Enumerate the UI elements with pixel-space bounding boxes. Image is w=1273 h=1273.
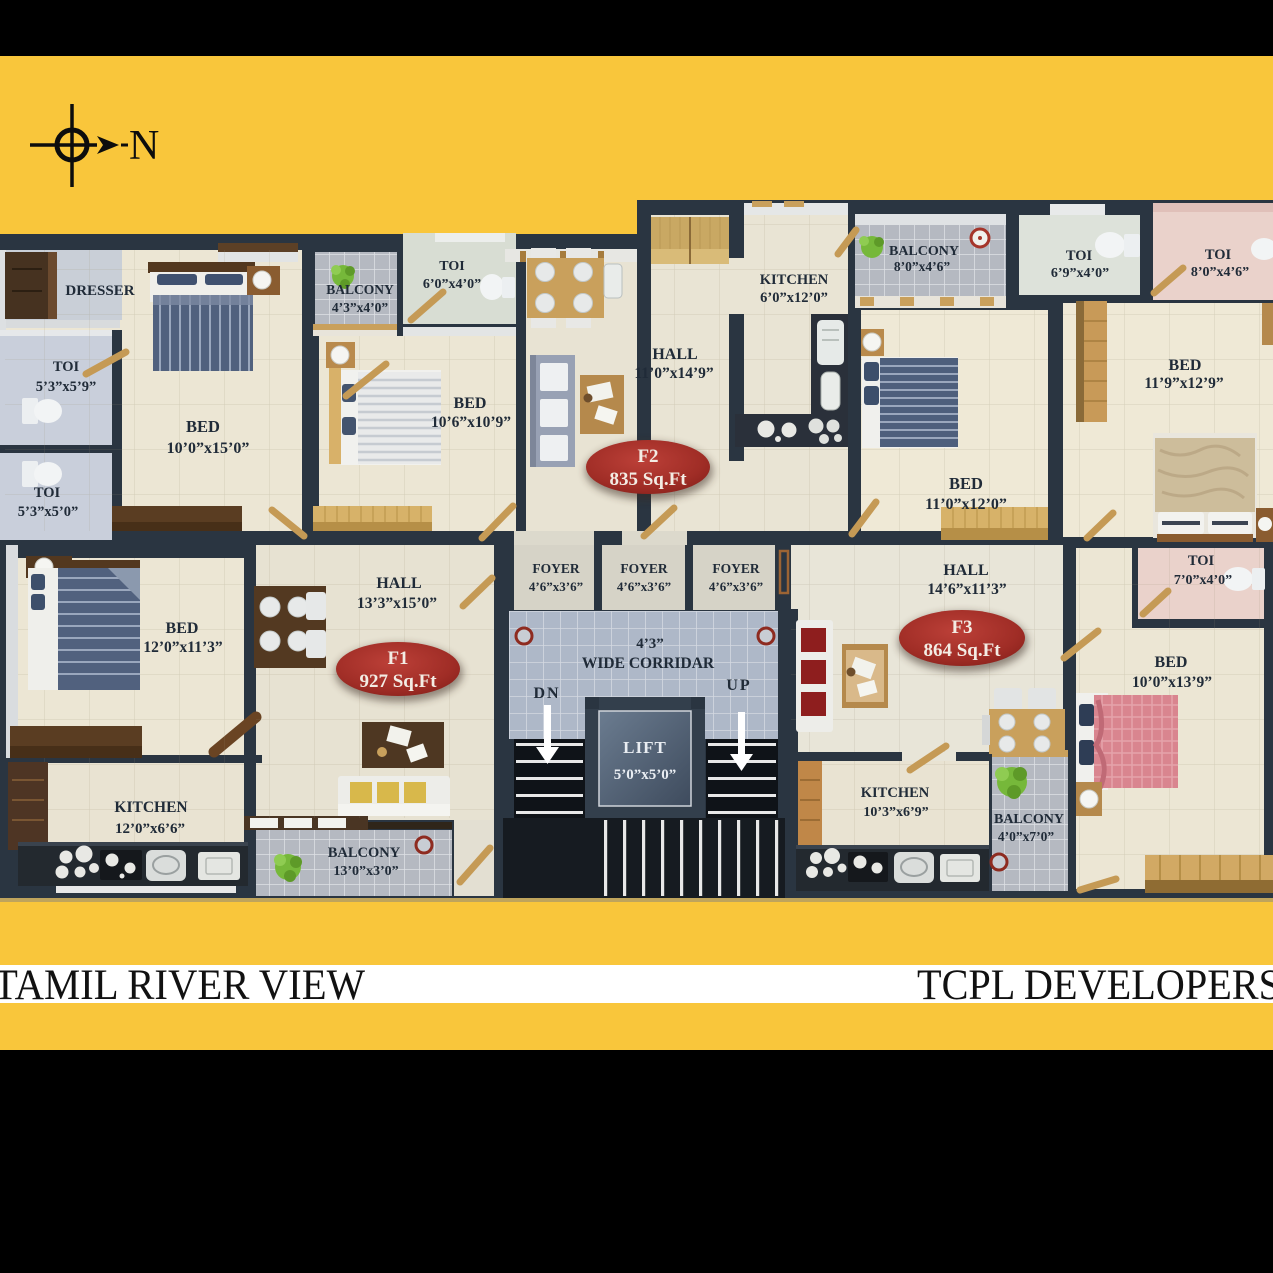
svg-text:12’0”x11’3”: 12’0”x11’3” [143,639,222,656]
svg-text:TOI: TOI [1188,553,1215,569]
svg-text:KITCHEN: KITCHEN [760,272,829,288]
svg-text:4’3”x4’0”: 4’3”x4’0” [332,300,388,315]
svg-text:7’0”x4’0”: 7’0”x4’0” [1174,573,1232,588]
svg-text:4’6”x3’6”: 4’6”x3’6” [529,579,583,594]
svg-text:5’3”x5’0”: 5’3”x5’0” [18,504,78,520]
svg-text:DN: DN [533,685,560,702]
svg-text:TCPL DEVELOPERS: TCPL DEVELOPERS [917,962,1273,1009]
svg-text:KITCHEN: KITCHEN [861,785,930,801]
svg-text:BED: BED [1169,357,1202,374]
svg-text:DRESSER: DRESSER [65,283,134,299]
svg-text:LIFT: LIFT [623,738,667,757]
svg-text:TOI: TOI [439,259,464,274]
svg-text:TOI: TOI [53,359,80,375]
svg-text:F2: F2 [637,446,658,467]
svg-text:5’3”x5’9”: 5’3”x5’9” [36,379,96,395]
svg-text:4’0”x7’0”: 4’0”x7’0” [998,829,1054,844]
svg-text:6’0”x12’0”: 6’0”x12’0” [760,290,828,306]
svg-text:10’3”x6’9”: 10’3”x6’9” [863,805,928,820]
svg-text:UP: UP [726,677,751,694]
svg-text:10’0”x15’0”: 10’0”x15’0” [167,440,250,457]
svg-text:6’0”x4’0”: 6’0”x4’0” [423,277,481,292]
svg-text:4’6”x3’6”: 4’6”x3’6” [709,579,763,594]
svg-text:TOI: TOI [1066,248,1093,264]
svg-text:TAMIL RIVER VIEW: TAMIL RIVER VIEW [0,962,365,1009]
svg-text:N: N [129,123,159,169]
svg-text:835 Sq.Ft: 835 Sq.Ft [609,469,687,490]
svg-text:HALL: HALL [943,562,988,579]
svg-text:FOYER: FOYER [532,561,580,576]
svg-text:927 Sq.Ft: 927 Sq.Ft [359,671,437,692]
svg-text:BED: BED [949,474,983,493]
svg-text:TOI: TOI [1205,247,1232,263]
svg-text:F3: F3 [951,617,972,638]
svg-text:10’6”x10’9”: 10’6”x10’9” [431,414,511,431]
svg-text:KITCHEN: KITCHEN [114,799,187,816]
svg-text:WIDE CORRIDAR: WIDE CORRIDAR [582,655,715,672]
svg-text:13’3”x15’0”: 13’3”x15’0” [357,595,437,612]
svg-text:F1: F1 [387,648,408,669]
svg-text:BED: BED [166,620,199,637]
svg-text:FOYER: FOYER [712,561,760,576]
svg-text:BED: BED [454,395,487,412]
svg-text:11’0”x14’9”: 11’0”x14’9” [634,365,713,382]
svg-text:BALCONY: BALCONY [994,812,1064,827]
svg-text:12’0”x6’6”: 12’0”x6’6” [115,821,185,837]
svg-text:11’0”x12’0”: 11’0”x12’0” [925,496,1007,513]
svg-text:BED: BED [186,417,220,436]
svg-text:BALCONY: BALCONY [328,845,401,861]
svg-text:8’0”x4’6”: 8’0”x4’6” [894,259,950,274]
svg-text:TOI: TOI [34,485,61,501]
svg-text:BALCONY: BALCONY [889,244,959,259]
svg-text:FOYER: FOYER [620,561,668,576]
svg-text:13’0”x3’0”: 13’0”x3’0” [333,864,398,879]
svg-text:4’6”x3’6”: 4’6”x3’6” [617,579,671,594]
svg-text:BALCONY: BALCONY [326,282,394,297]
svg-text:864 Sq.Ft: 864 Sq.Ft [923,640,1001,661]
svg-text:HALL: HALL [652,346,697,363]
svg-text:4’3”: 4’3” [636,636,664,652]
svg-text:5’0”x5’0”: 5’0”x5’0” [614,767,677,783]
svg-text:14’6”x11’3”: 14’6”x11’3” [927,581,1006,598]
svg-text:11’9”x12’9”: 11’9”x12’9” [1144,375,1223,392]
svg-text:8’0”x4’6”: 8’0”x4’6” [1191,265,1249,280]
svg-text:6’9”x4’0”: 6’9”x4’0” [1051,266,1109,281]
svg-text:BED: BED [1155,654,1188,671]
svg-text:HALL: HALL [376,575,421,592]
svg-text:10’0”x13’9”: 10’0”x13’9” [1132,674,1212,691]
